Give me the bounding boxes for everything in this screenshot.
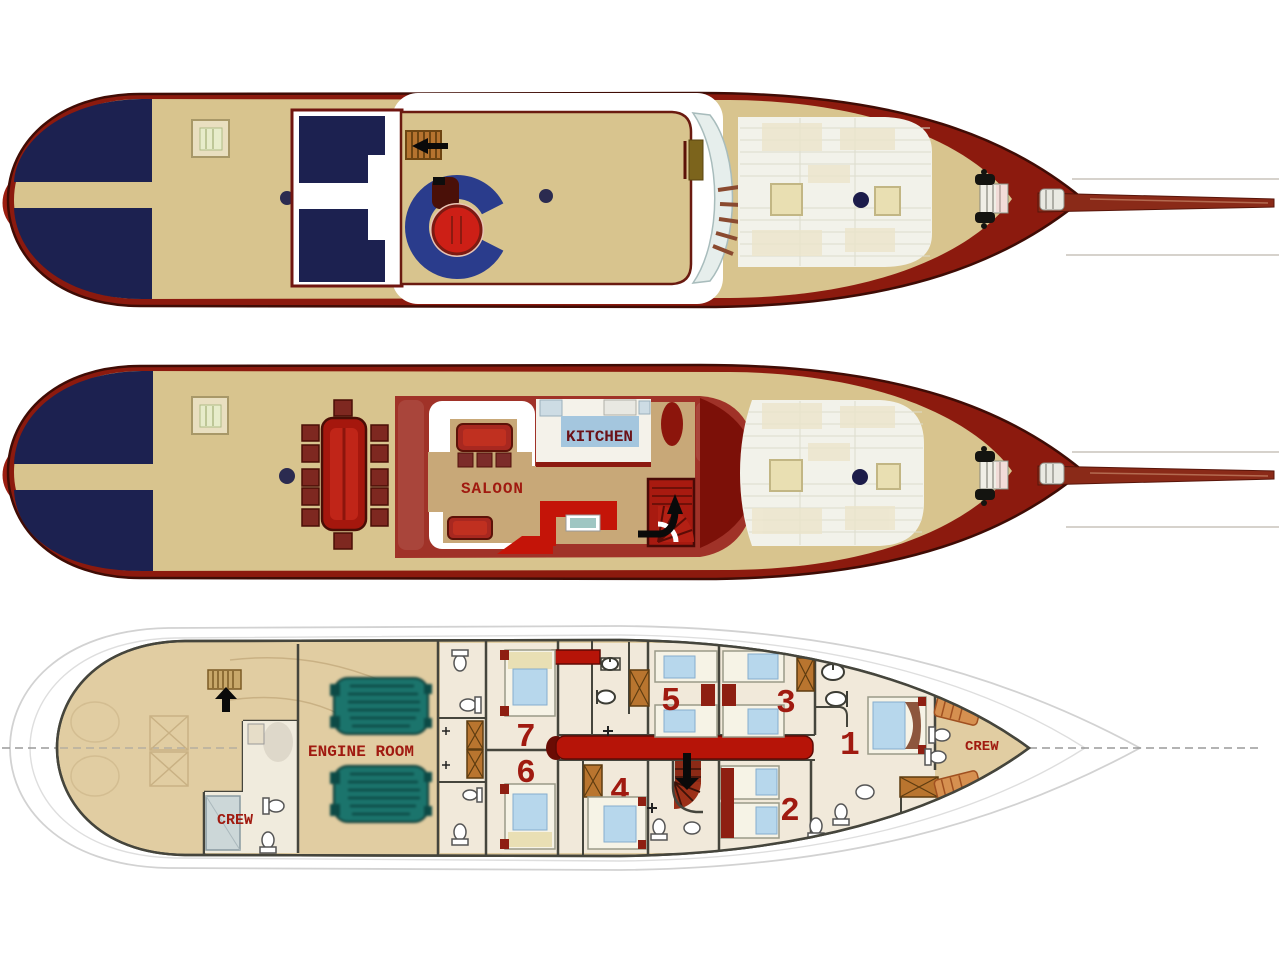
svg-text:CREW: CREW xyxy=(965,739,999,755)
svg-text:2: 2 xyxy=(780,793,800,830)
svg-text:1: 1 xyxy=(840,727,860,764)
svg-text:CREW: CREW xyxy=(217,812,253,829)
svg-text:ENGINE ROOM: ENGINE ROOM xyxy=(308,743,414,761)
svg-text:SALOON: SALOON xyxy=(461,480,523,498)
svg-text:5: 5 xyxy=(661,683,681,720)
svg-text:7: 7 xyxy=(516,719,536,756)
svg-text:KITCHEN: KITCHEN xyxy=(566,428,633,446)
svg-text:3: 3 xyxy=(776,685,796,722)
svg-text:6: 6 xyxy=(516,755,536,792)
